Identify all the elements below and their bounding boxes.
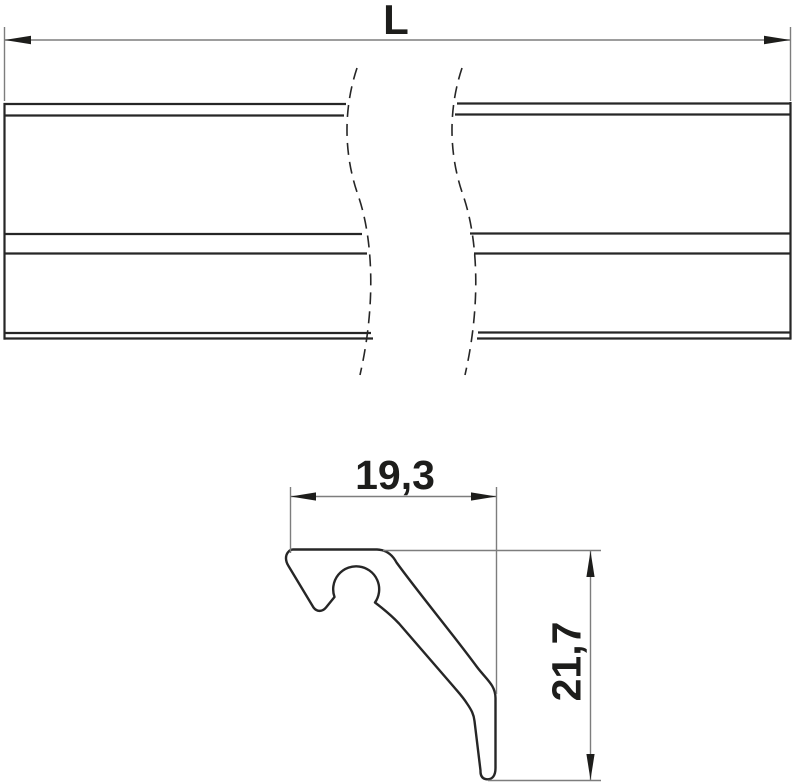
width-dimension: 19,3	[291, 452, 497, 694]
height-dimension-label: 21,7	[544, 622, 590, 702]
dim-arrow-right-icon	[764, 36, 791, 45]
dim-arrow-right-icon	[471, 492, 497, 500]
profile-outline	[286, 550, 496, 780]
width-dimension-label: 19,3	[355, 452, 435, 498]
technical-drawing-page: L	[0, 0, 794, 784]
length-label: L	[383, 0, 409, 43]
rail-left-segment	[4, 103, 374, 340]
technical-drawing: L	[0, 0, 794, 784]
dim-arrow-left-icon	[5, 36, 32, 45]
rail-right-segment	[455, 102, 791, 340]
dim-arrow-down-icon	[586, 754, 594, 780]
dim-arrow-left-icon	[291, 492, 317, 500]
profile-cross-section	[286, 550, 496, 780]
dim-arrow-up-icon	[586, 551, 594, 577]
rail-side-view	[4, 68, 792, 375]
length-dimension: L	[5, 0, 791, 101]
height-dimension: 21,7	[383, 551, 601, 781]
break-line-left	[347, 68, 371, 375]
